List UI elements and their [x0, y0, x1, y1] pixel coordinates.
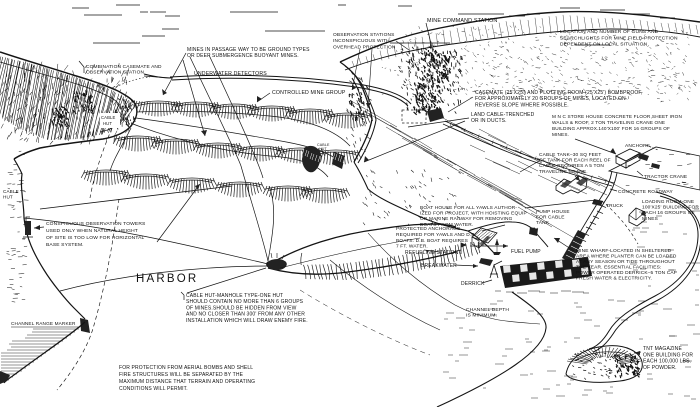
svg-text:LOCATION AND NUMBER OF GUNS AN: LOCATION AND NUMBER OF GUNS AND: [560, 29, 659, 35]
svg-text:BOATS. D.B. BOAT REQUIRES: BOATS. D.B. BOAT REQUIRES: [396, 238, 468, 244]
svg-text:EACH 16 GROUPS OF: EACH 16 GROUPS OF: [642, 210, 695, 216]
svg-text:AT ANY SEASON OR TIDE THROUGHO: AT ANY SEASON OR TIDE THROUGHOUT: [576, 259, 675, 265]
svg-text:ONE BUILDING FOR: ONE BUILDING FOR: [643, 352, 693, 358]
svg-text:IZED FOR PROJECT, WITH HOISTIN: IZED FOR PROJECT, WITH HOISTING EQUIP: [420, 211, 527, 217]
svg-text:REVERSE SLOPE WHERE POSSIBLE.: REVERSE SLOPE WHERE POSSIBLE.: [475, 102, 569, 108]
svg-text:TRUCK: TRUCK: [606, 203, 624, 209]
svg-text:CABLE: CABLE: [101, 115, 116, 120]
svg-text:THE YEAR. ESSENTIAL FACILITI: THE YEAR. ESSENTIAL FACILITIES:: [576, 265, 661, 271]
svg-text:WALLS & ROOF, 2 TON TRAVELING: WALLS & ROOF, 2 TON TRAVELING CRANE ONE: [552, 120, 665, 125]
svg-text:TRAVELING CRANE.: TRAVELING CRANE.: [539, 169, 588, 175]
svg-text:COMBINATION CASEMATE AND: COMBINATION CASEMATE AND: [86, 64, 162, 70]
svg-text:OF MINES.SHOULD BE HIDDEN FROM: OF MINES.SHOULD BE HIDDEN FROM VIEW: [186, 305, 297, 311]
svg-text:CASEMATE (25'X25') AND PLOTTIN: CASEMATE (25'X25') AND PLOTTING ROOM (25…: [475, 90, 643, 96]
svg-text:SEARCHLIGHTS FOR MINE FIELD PR: SEARCHLIGHTS FOR MINE FIELD PROTECTION: [560, 35, 678, 41]
svg-text:7 FT. WATER.: 7 FT. WATER.: [396, 244, 428, 250]
svg-text:FRESH WATER & ELECTRICITY.: FRESH WATER & ELECTRICITY.: [576, 276, 652, 282]
svg-text:BREAKWATER: BREAKWATER: [421, 263, 457, 269]
svg-text:CABLE: CABLE: [3, 189, 19, 194]
svg-text:OBSERVATION STATIONS: OBSERVATION STATIONS: [333, 32, 394, 38]
svg-text:CONDITIONS WILL PERMIT.: CONDITIONS WILL PERMIT.: [119, 386, 188, 392]
svg-text:CABLE-REQUIRES A 5 TON: CABLE-REQUIRES A 5 TON: [539, 163, 604, 169]
svg-text:CHANNEL DEPTH: CHANNEL DEPTH: [466, 307, 509, 313]
svg-text:PROTECTED ANCHORAGE: PROTECTED ANCHORAGE: [396, 226, 460, 232]
svg-text:HARBOR: HARBOR: [136, 273, 198, 285]
svg-text:POWER OPERATED DERRICK–5 TON C: POWER OPERATED DERRICK–5 TON CAP: [576, 270, 677, 276]
svg-text:INCONSPICUOUS WITH: INCONSPICUOUS WITH: [333, 38, 390, 44]
svg-text:INSTALLATION WHICH WILL DRAW E: INSTALLATION WHICH WILL DRAW ENEMY FIRE.: [186, 318, 308, 324]
svg-text:MINES.: MINES.: [552, 132, 569, 137]
svg-text:M N C STORE HOUSE CONCRETE FLO: M N C STORE HOUSE CONCRETE FLOOR,SHEET I…: [552, 114, 682, 119]
svg-text:OR DEEP SUBMERGENCE BUOYANT MI: OR DEEP SUBMERGENCE BUOYANT MINES.: [187, 53, 299, 59]
svg-text:TANK: TANK: [536, 220, 550, 226]
svg-text:SHOULD CONTAIN NO MORE THAN 6: SHOULD CONTAIN NO MORE THAN 6 GROUPS: [186, 299, 304, 305]
svg-text:LOADING ROOM-ONE: LOADING ROOM-ONE: [642, 199, 694, 205]
svg-text:TRACTOR CRANE: TRACTOR CRANE: [644, 174, 687, 180]
svg-text:100'X25' BUILDING FOR: 100'X25' BUILDING FOR: [642, 205, 699, 211]
svg-text:TNT MAGAZINE: TNT MAGAZINE: [643, 346, 682, 352]
svg-text:FOR CABLE: FOR CABLE: [536, 215, 565, 221]
svg-text:OR MARINE RAILWAY FOR REMOVING: OR MARINE RAILWAY FOR REMOVING: [420, 216, 513, 222]
svg-text:FOR APPROXIMATELY 20 GROUPS OF: FOR APPROXIMATELY 20 GROUPS OF MINES, LO…: [475, 96, 626, 102]
svg-text:EACH 100,000 LBS.: EACH 100,000 LBS.: [643, 359, 691, 365]
svg-text:OR IN DUCTS.: OR IN DUCTS.: [471, 118, 507, 124]
svg-text:BASE SYSTEM.: BASE SYSTEM.: [46, 242, 84, 248]
svg-text:MINES IN PASSAGE WAY TO BE GRO: MINES IN PASSAGE WAY TO BE GROUND TYPES: [187, 47, 310, 53]
svg-text:AND NO CLOSER THAN 300' FROM A: AND NO CLOSER THAN 300' FROM ANY OTHER: [186, 312, 305, 318]
svg-text:CABLE HUT-MANHOLE TYPE-ONE HUT: CABLE HUT-MANHOLE TYPE-ONE HUT: [186, 293, 283, 299]
svg-text:REFUELING STATION: REFUELING STATION: [405, 250, 459, 256]
svg-text:OVERHEAD PROTECTION: OVERHEAD PROTECTION: [333, 44, 396, 50]
svg-text:FIRE STRUCTURES WILL BE SEPARA: FIRE STRUCTURES WILL BE SEPARATED BY THE: [119, 372, 244, 378]
svg-text:DERRICK: DERRICK: [461, 281, 485, 287]
svg-text:OF POWDER.: OF POWDER.: [643, 365, 677, 371]
svg-text:MINE COMMAND STATION: MINE COMMAND STATION: [427, 18, 497, 24]
svg-text:FUEL PUMP: FUEL PUMP: [511, 249, 541, 255]
svg-text:ANCHORS: ANCHORS: [625, 143, 650, 149]
svg-text:CHANNEL RANGE MARKER: CHANNEL RANGE MARKER: [11, 321, 76, 326]
svg-text:OF TANK FOR EACH REEL OF: OF TANK FOR EACH REEL OF: [539, 158, 611, 164]
svg-text:PUMP HOUSE: PUMP HOUSE: [536, 209, 570, 215]
svg-text:BUILDING APPROX.140'X100' FOR: BUILDING APPROX.140'X100' FOR 16 GROUPS …: [552, 126, 670, 131]
svg-text:IS MINIMUM.: IS MINIMUM.: [466, 313, 497, 319]
svg-text:OF SITE IS TOO LOW FOR HORIZON: OF SITE IS TOO LOW FOR HORIZONTAL: [46, 235, 145, 241]
svg-text:UNDERWATER DETECTORS: UNDERWATER DETECTORS: [194, 71, 267, 77]
svg-text:HUT: HUT: [3, 195, 13, 200]
svg-text:FOR PROTECTION FROM AERIAL BOM: FOR PROTECTION FROM AERIAL BOMBS AND SHE…: [119, 365, 253, 371]
svg-text:AREA WHERE PLANTER CAN BE LOAD: AREA WHERE PLANTER CAN BE LOADED: [576, 254, 677, 260]
svg-text:MINES: MINES: [642, 216, 658, 222]
svg-text:OBSERVATION STATION: OBSERVATION STATION: [86, 70, 144, 76]
svg-text:MINE WHARF-LOCATED IN SHELTERE: MINE WHARF-LOCATED IN SHELTERED: [576, 248, 672, 254]
svg-text:DEPENDENT ON LOCAL SITUATION: DEPENDENT ON LOCAL SITUATION: [560, 42, 648, 48]
svg-text:REQUIRED FOR YAWLS AND D.B.: REQUIRED FOR YAWLS AND D.B.: [396, 232, 476, 238]
svg-text:HUT: HUT: [319, 147, 327, 151]
svg-text:HUT: HUT: [103, 121, 112, 126]
svg-text:CONSPICUOUS OBSERVATION TOWERS: CONSPICUOUS OBSERVATION TOWERS: [46, 221, 146, 227]
svg-text:BOAT HOUSE FOR ALL YAWLS AUTHO: BOAT HOUSE FOR ALL YAWLS AUTHOR-: [420, 205, 517, 211]
svg-text:USED ONLY WHEN NATURAL HEIGHT: USED ONLY WHEN NATURAL HEIGHT: [46, 228, 138, 234]
svg-text:MAXIMUM DISTANCE THAT TERRAIN: MAXIMUM DISTANCE THAT TERRAIN AND OPERAT…: [119, 379, 255, 385]
svg-text:CABLE TANK–30 SQ FEET: CABLE TANK–30 SQ FEET: [539, 152, 601, 158]
svg-text:CONTROLLED MINE GROUP: CONTROLLED MINE GROUP: [272, 90, 346, 96]
svg-text:CONCRETE ROADWAY: CONCRETE ROADWAY: [618, 189, 674, 195]
